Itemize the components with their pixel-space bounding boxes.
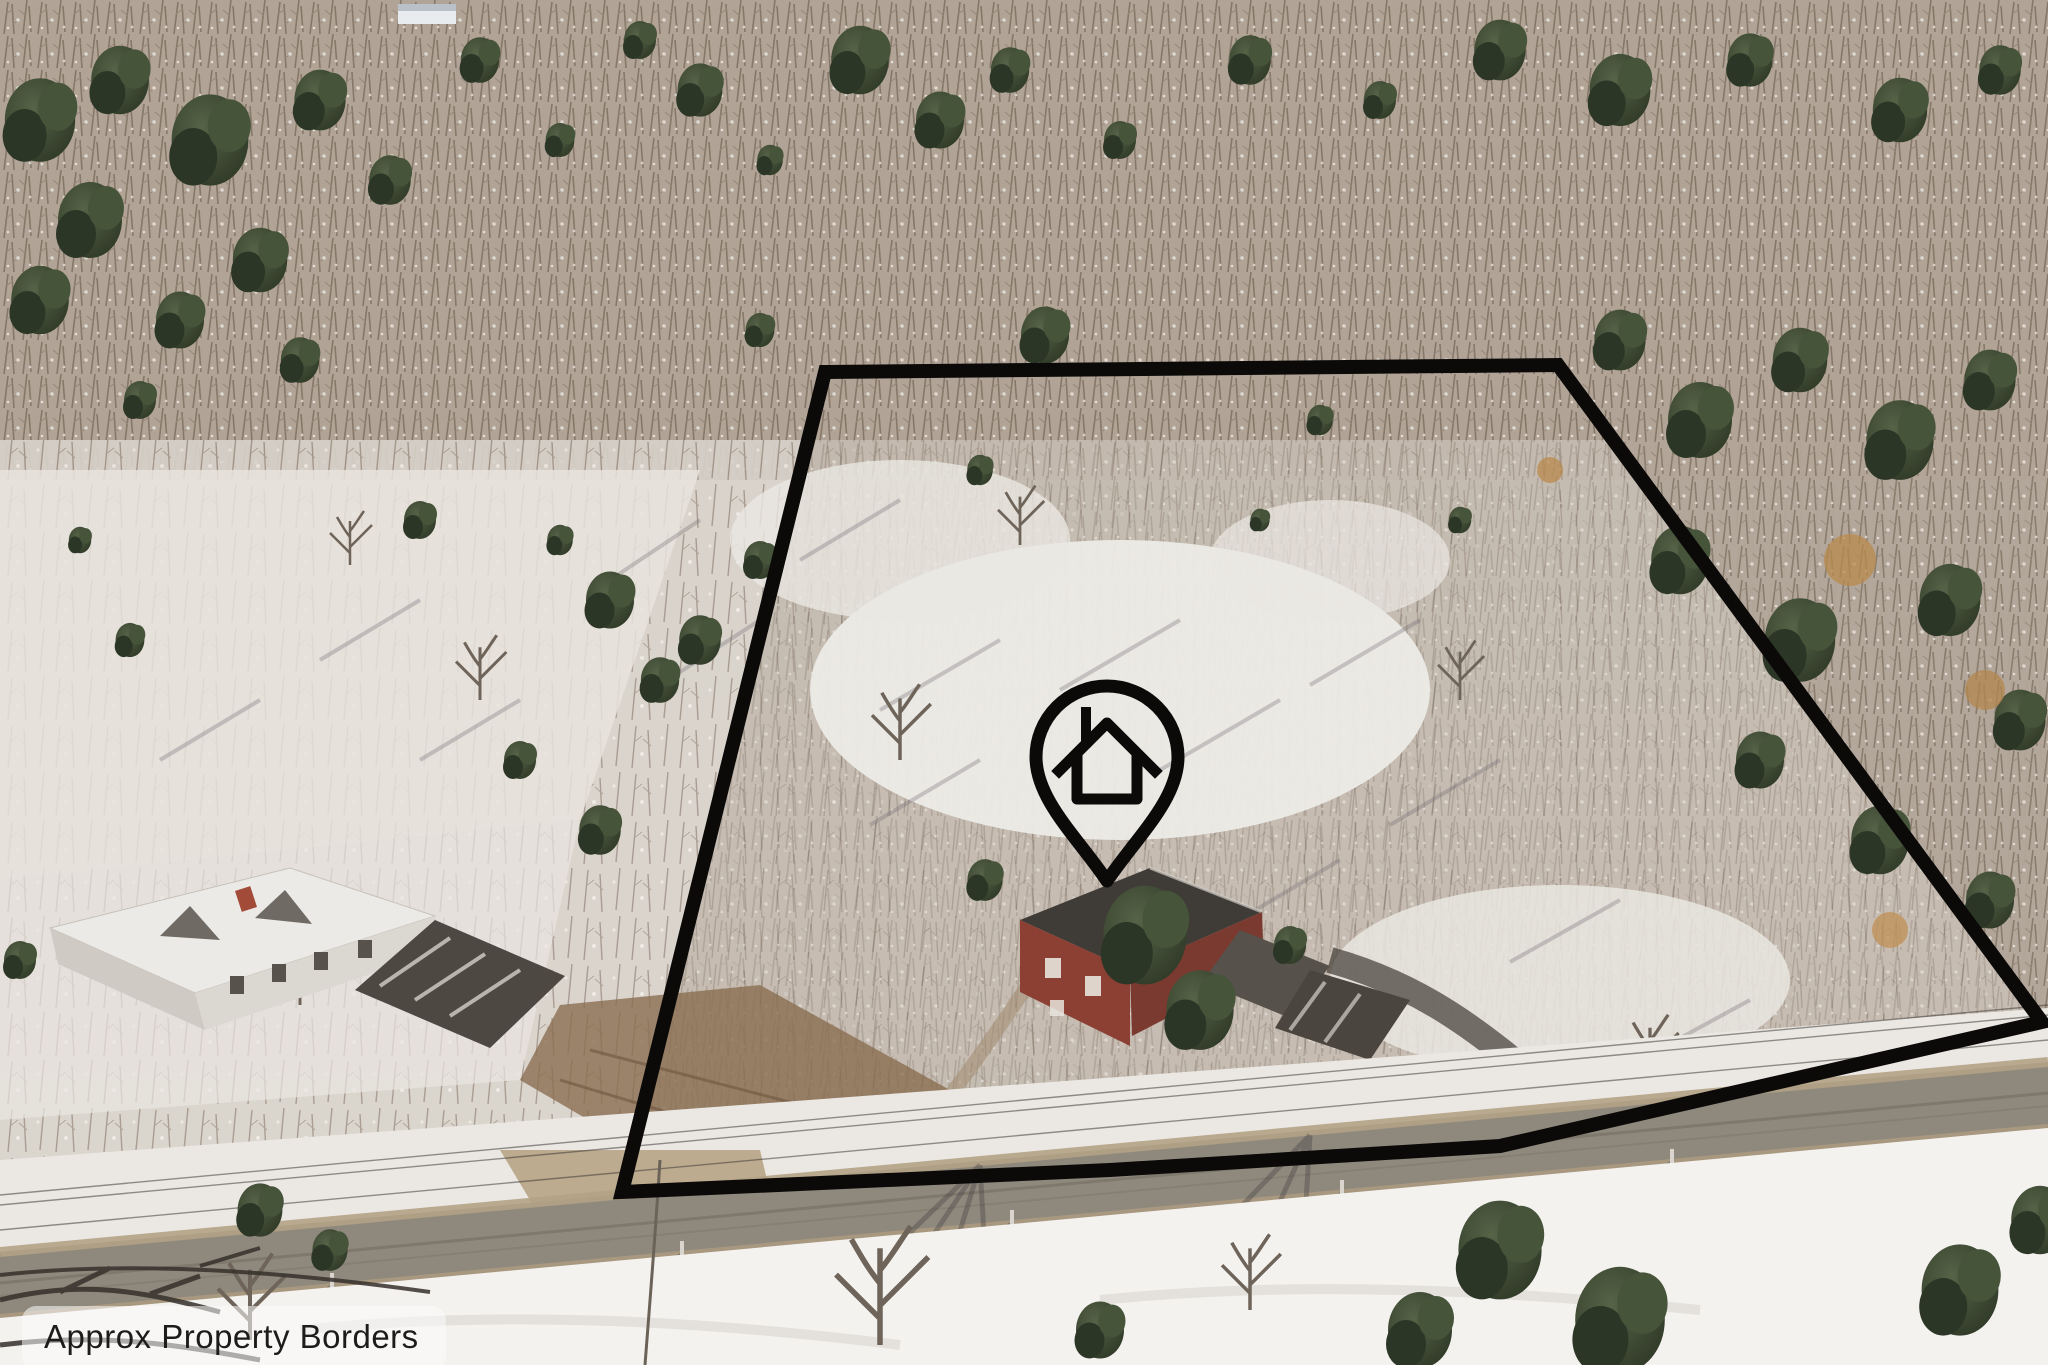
aerial-photo-base xyxy=(0,0,2048,1365)
property-borders-label: Approx Property Borders xyxy=(22,1306,446,1365)
property-borders-label-text: Approx Property Borders xyxy=(44,1318,419,1355)
aerial-photo: Approx Property Borders xyxy=(0,0,2048,1365)
distant-building xyxy=(398,4,456,24)
property-aerial-screenshot: Approx Property Borders xyxy=(0,0,2048,1365)
